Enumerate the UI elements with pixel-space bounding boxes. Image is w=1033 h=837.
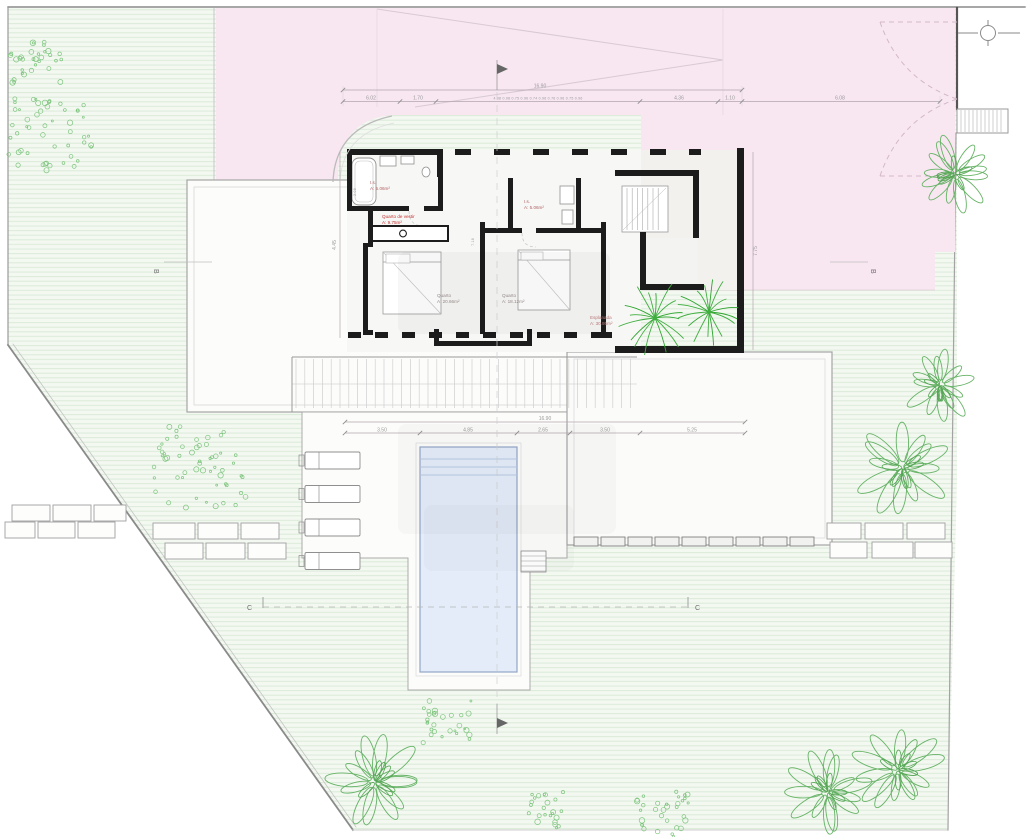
dim-top-total: 16.90 xyxy=(534,84,547,90)
ramp-steps xyxy=(957,109,1008,133)
sun-lounger xyxy=(299,553,360,570)
dim-label: 3.50 xyxy=(377,428,387,434)
dim-bottom-total: 16.90 xyxy=(539,416,552,422)
room-label-vestir-name: Quarto de vestir xyxy=(382,214,415,219)
section-b-right: B xyxy=(869,269,876,274)
section-c-left: C xyxy=(247,605,252,612)
room-label-is2-area: A: 5.06m² xyxy=(524,205,544,210)
dim-right: 7.75 xyxy=(753,246,759,256)
room-label-vestir-area: A: 9.75m² xyxy=(382,220,402,225)
dim-label: 5.25 xyxy=(687,428,697,434)
room-label-is2-name: I.s. xyxy=(524,199,530,204)
dim-label: 1.70 xyxy=(413,96,423,102)
wardrobe xyxy=(372,226,448,241)
dim-label: 4.36 xyxy=(674,96,684,102)
dim-label: 4.88 0.98 0.75 0.96 0.74 0.96 0.76 0.96 … xyxy=(493,97,582,101)
dim-label: 6.08 xyxy=(835,96,845,102)
room-label-is1-name: I.s. xyxy=(370,180,376,185)
survey-marker-icon xyxy=(958,20,1020,46)
floor-plan-svg: 16.90 6.02 1.70 4.88 0.98 0.75 0.96 0.74… xyxy=(0,0,1033,837)
dim-inner: 2.08 xyxy=(353,188,357,196)
dim-left: 4.45 xyxy=(332,240,338,250)
dim-inner: 7.18 xyxy=(471,238,475,246)
section-c-right: C xyxy=(695,605,700,612)
architectural-site-plan: 16.90 6.02 1.70 4.88 0.98 0.75 0.96 0.74… xyxy=(0,0,1033,837)
sun-lounger xyxy=(299,452,360,469)
sun-lounger xyxy=(299,486,360,503)
sun-lounger xyxy=(299,519,360,536)
dim-label: 1.10 xyxy=(725,96,735,102)
dim-label: 6.02 xyxy=(366,96,376,102)
patio-paving-strip xyxy=(574,537,814,546)
room-label-is1-area: A: 5.06m² xyxy=(370,186,390,191)
section-b-left: B xyxy=(152,269,159,274)
